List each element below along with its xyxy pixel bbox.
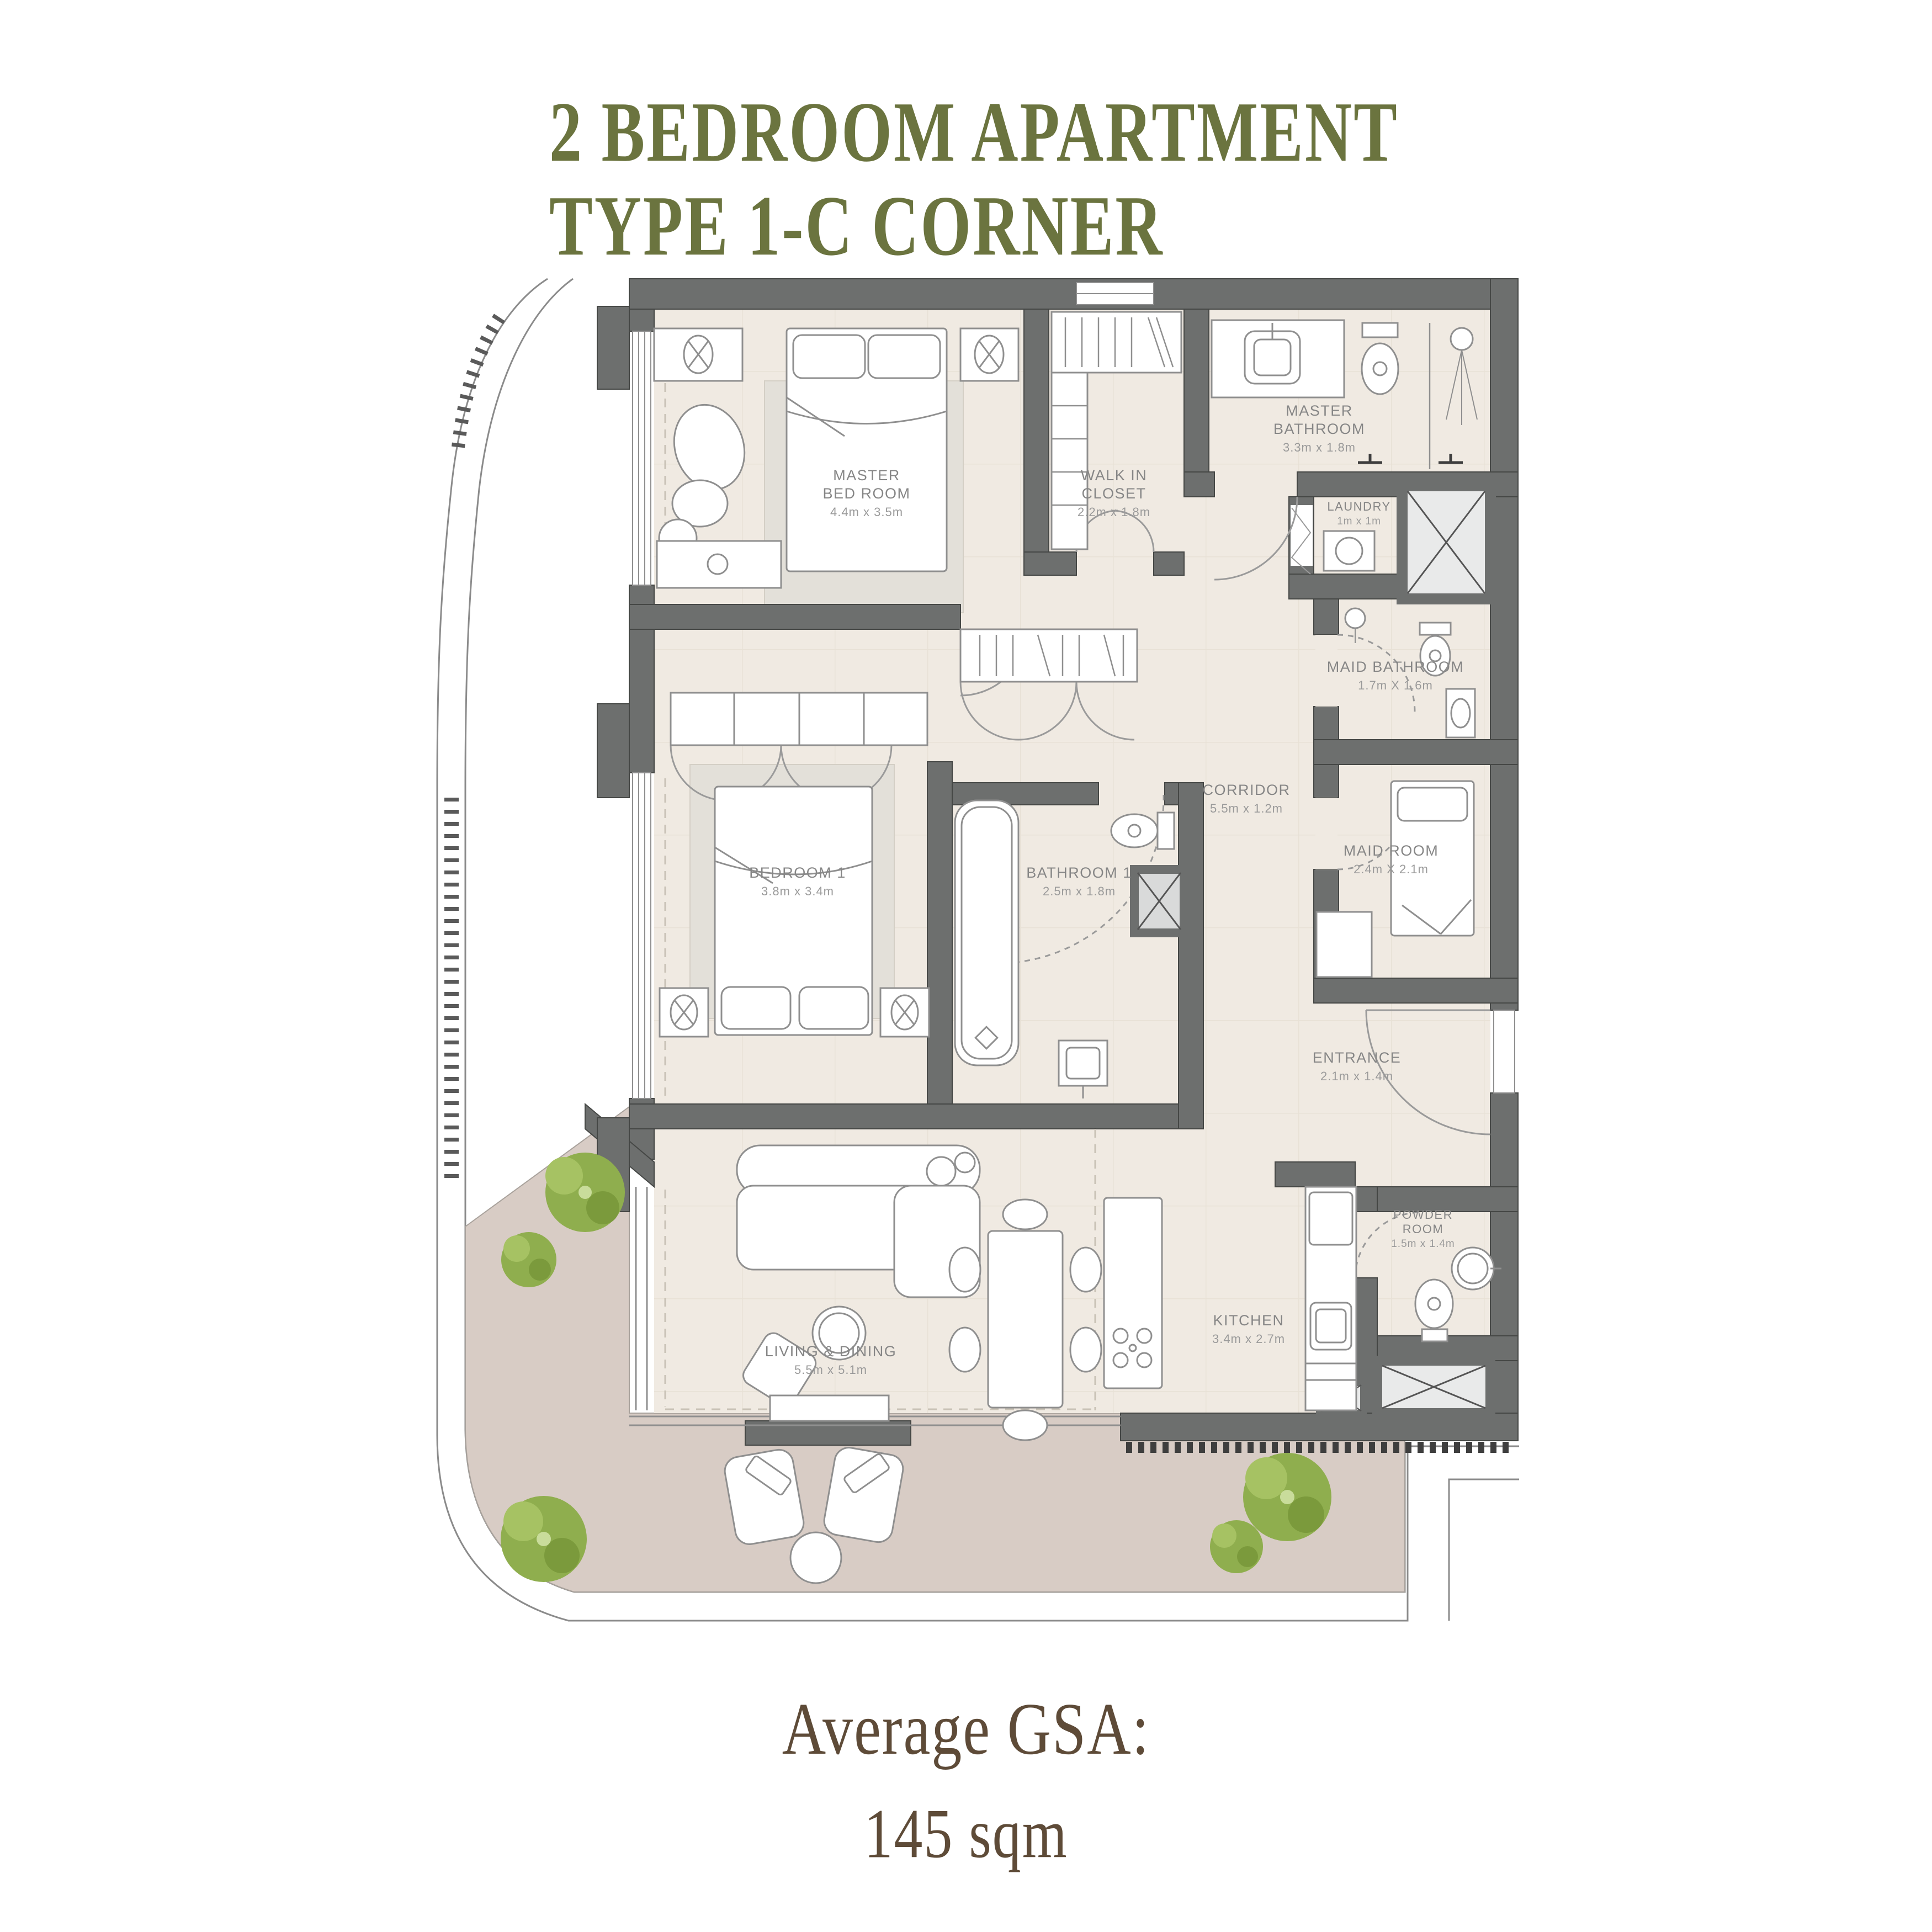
maidroom-door-gap xyxy=(1315,798,1337,869)
floor-plan-canvas xyxy=(0,0,1932,1932)
bedroom1-closet xyxy=(671,693,927,745)
shaft-top-right xyxy=(1402,486,1490,599)
room-label-maid-room: MAID ROOM 2.4m X 2.1m xyxy=(1344,842,1439,878)
sliding-door-living-left xyxy=(636,1187,647,1410)
kitchen-counter xyxy=(1305,1187,1356,1410)
room-label-master-bedroom: MASTER BED ROOM 4.4m x 3.5m xyxy=(822,466,910,521)
washing-machine-icon xyxy=(1324,531,1374,571)
window-bedroom1 xyxy=(633,773,651,1098)
bookshelf xyxy=(960,629,1137,682)
window-master xyxy=(633,331,651,585)
room-label-bedroom-1: BEDROOM 1 3.8m x 3.4m xyxy=(749,864,846,900)
room-label-corridor: CORRIDOR 5.5m x 1.2m xyxy=(1203,781,1291,817)
maid-wardrobe xyxy=(1317,912,1372,977)
master-bed xyxy=(787,328,947,571)
window-closet-top xyxy=(1076,283,1154,305)
room-label-powder-room: POWDER ROOM 1.5m x 1.4m xyxy=(1391,1208,1455,1251)
tree-icon xyxy=(501,1232,556,1287)
room-label-bathroom-1: BATHROOM 1 2.5m x 1.8m xyxy=(1026,864,1132,900)
room-label-entrance: ENTRANCE 2.1m x 1.4m xyxy=(1313,1049,1402,1085)
room-label-maid-bathroom: MAID BATHROOM 1.7m X 1.6m xyxy=(1327,658,1464,694)
floorplan-page: { "title": { "line1": "2 BEDROOM APARTME… xyxy=(0,0,1932,1932)
dresser-mirror-icon xyxy=(708,554,728,574)
shaft-bottom-right xyxy=(1377,1361,1490,1413)
room-label-master-bathroom: MASTER BATHROOM 3.3m x 1.8m xyxy=(1273,402,1365,456)
room-label-laundry: LAUNDRY 1m x 1m xyxy=(1327,500,1390,528)
tv-console xyxy=(770,1395,889,1421)
footer-area-value: 145 sqm xyxy=(0,1794,1932,1874)
bedroom1-bed xyxy=(715,787,872,1035)
kitchen-island xyxy=(1104,1198,1162,1388)
room-label-kitchen: KITCHEN 3.4m x 2.7m xyxy=(1212,1312,1285,1347)
laundry-door-gap xyxy=(1291,505,1313,566)
page-title-line2: TYPE 1-C CORNER xyxy=(549,177,1164,276)
entrance-door-gap xyxy=(1494,1010,1515,1093)
room-label-living-dining: LIVING & DINING 5.5m x 5.1m xyxy=(765,1342,897,1378)
page-title-line1: 2 BEDROOM APARTMENT xyxy=(549,83,1399,182)
room-label-walk-in-closet: WALK IN CLOSET 2.2m x 1.8m xyxy=(1078,466,1150,521)
tree-icon xyxy=(1210,1520,1263,1573)
tree-icon xyxy=(545,1153,625,1232)
tree-icon xyxy=(1243,1453,1331,1541)
tree-icon xyxy=(501,1496,587,1582)
footer-average-gsa: Average GSA: xyxy=(0,1686,1932,1772)
duct-bathroom1 xyxy=(1134,869,1184,933)
